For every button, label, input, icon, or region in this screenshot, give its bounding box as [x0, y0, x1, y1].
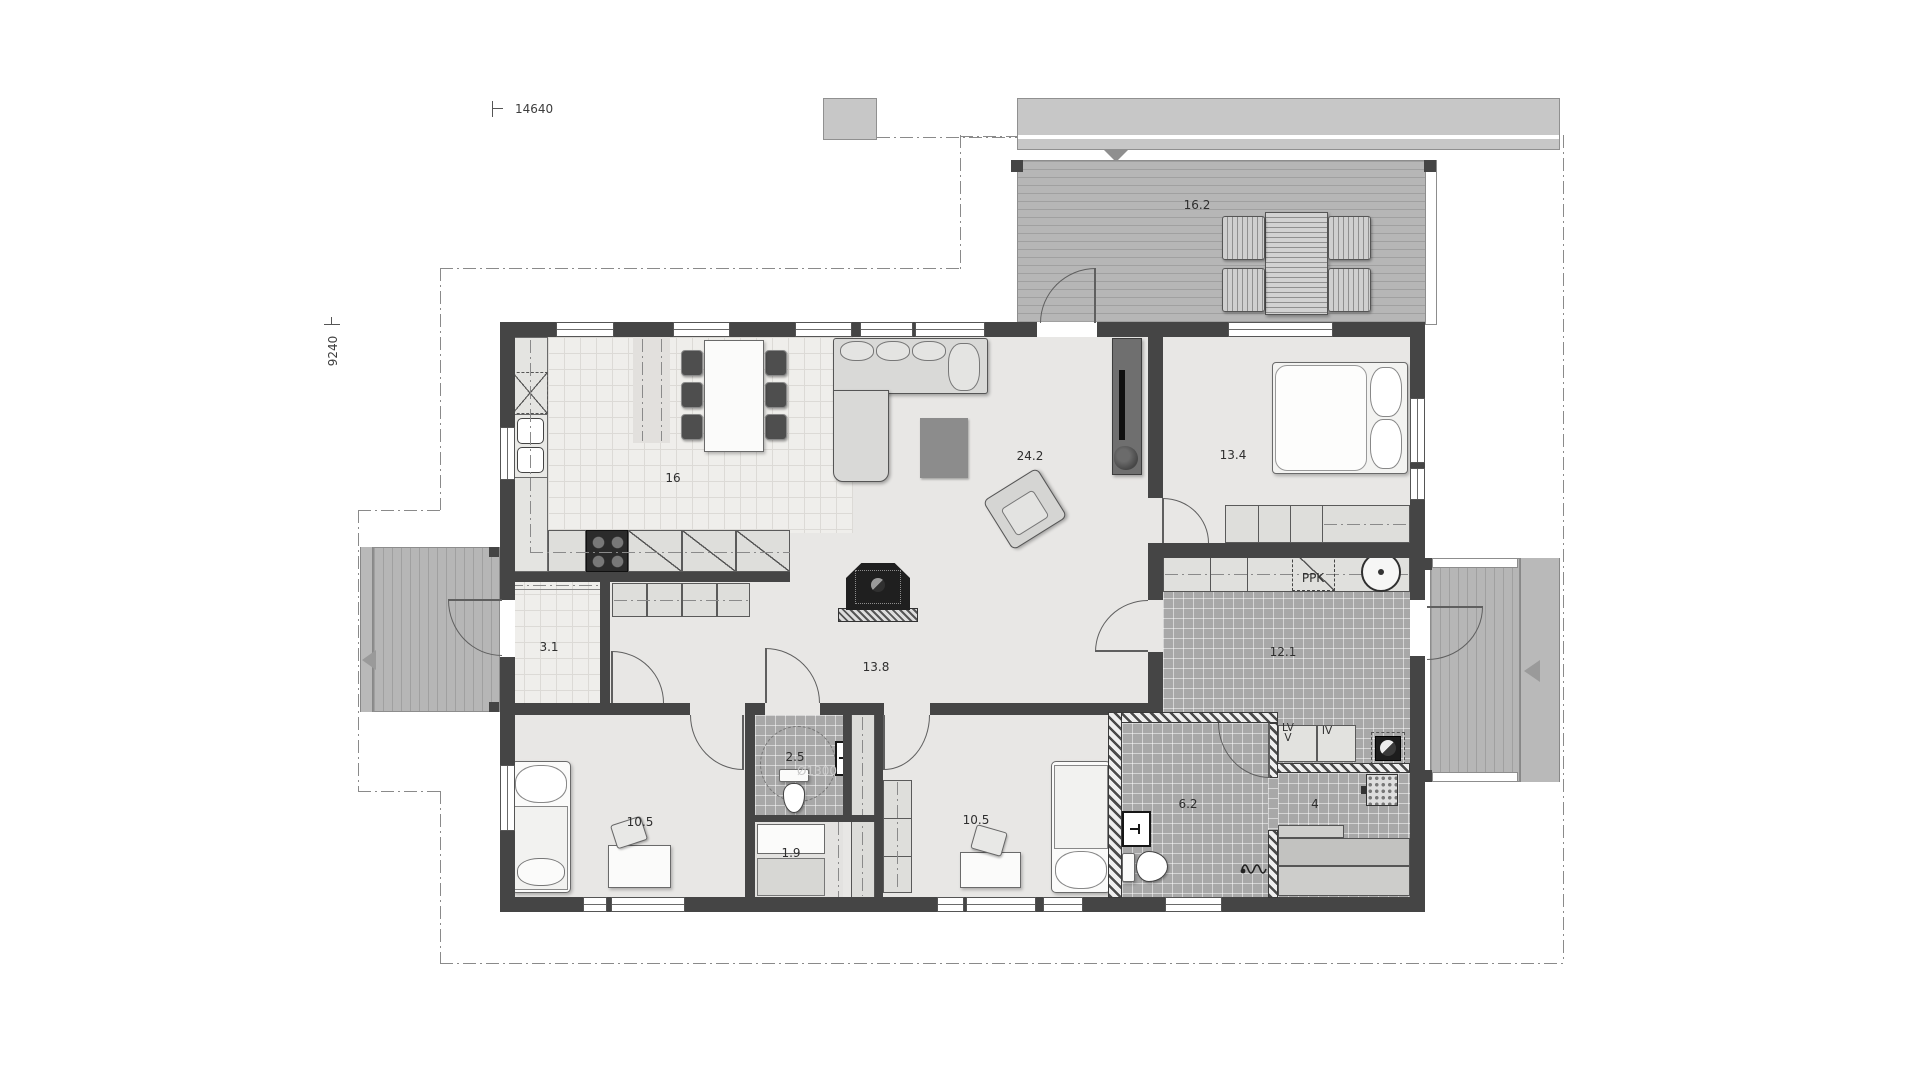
center-line: [614, 600, 748, 601]
room-label-utility-room: 12.1: [1270, 645, 1297, 659]
door-leaf: [765, 648, 767, 703]
wardrobe-divider: [1322, 505, 1323, 543]
door-opening: [1037, 322, 1097, 337]
dimension-tick: [331, 317, 332, 325]
wardrobe-divider: [1258, 505, 1259, 543]
washing-machine-label: PPK: [1302, 571, 1324, 585]
sauna-heater-handle: [1361, 786, 1366, 794]
roof-slope-arrow-icon: [1524, 660, 1540, 682]
room-label-closet: 1.9: [781, 846, 800, 860]
boundary-line: [440, 963, 1564, 964]
boundary-line: [960, 135, 961, 269]
boundary-line: [440, 268, 441, 510]
dimension-tick: [492, 101, 493, 117]
center-line: [530, 340, 531, 552]
room-label-wc: 2.5: [785, 750, 804, 764]
right-porch-deck: [1430, 558, 1520, 782]
pillow: [1370, 367, 1402, 417]
dining-chair: [765, 414, 787, 440]
door-opening: [1148, 600, 1163, 652]
service-shaft: [851, 715, 875, 898]
window: [915, 322, 985, 337]
porch-roof-edge: [360, 547, 373, 712]
kitchen-cabinet: [736, 530, 790, 572]
outdoor-chair: [1328, 216, 1371, 260]
pillow: [1370, 419, 1402, 469]
ventilation-label: IV: [1322, 726, 1332, 736]
porch-post: [489, 702, 499, 712]
window: [966, 897, 1036, 912]
porch-edge-board: [1432, 772, 1518, 782]
center-line: [1324, 524, 1408, 525]
wet-room-wall: [1108, 712, 1122, 898]
door-leaf: [883, 715, 885, 770]
door-leaf: [1095, 650, 1148, 652]
bed-blanket: [1054, 765, 1108, 849]
boundary-line: [358, 510, 359, 791]
window: [1228, 322, 1333, 337]
water-heater-dial: [1378, 569, 1384, 575]
sauna-heater-symbol: [1366, 774, 1398, 806]
wet-room-wall: [1268, 830, 1278, 898]
dining-chair: [681, 382, 703, 408]
desk: [960, 852, 1021, 888]
room-label-entry: 3.1: [539, 640, 558, 654]
window: [860, 322, 913, 337]
sofa-armrest: [948, 343, 980, 391]
dining-table: [704, 340, 764, 452]
outdoor-chair: [1328, 268, 1371, 312]
center-line: [510, 585, 598, 586]
window: [583, 897, 607, 912]
turning-circle-label: Ø1300: [797, 764, 837, 778]
tv-symbol: [1119, 370, 1125, 440]
boundary-line: [1563, 135, 1564, 963]
kitchen-cabinet: [682, 530, 736, 572]
interior-wall: [745, 703, 765, 715]
room-label-bathroom: 6.2: [1178, 797, 1197, 811]
room-label-terrace: 16.2: [1184, 198, 1211, 212]
room-label-bedroom-left: 10.5: [627, 815, 654, 829]
room-label-bedroom-right: 10.5: [963, 813, 990, 827]
door-leaf: [611, 651, 613, 703]
outdoor-chair: [1222, 216, 1265, 260]
toilet-tank: [1122, 853, 1135, 882]
desk: [608, 845, 671, 888]
window: [1043, 897, 1083, 912]
door-leaf: [742, 715, 744, 770]
outdoor-chair: [1222, 268, 1265, 312]
roof-edge: [823, 98, 877, 140]
terrace-post: [1011, 160, 1023, 172]
dimension-left: 9240: [326, 336, 340, 367]
sauna-bench: [1278, 866, 1410, 896]
wardrobe-divider: [1290, 505, 1291, 543]
window: [1165, 897, 1222, 912]
interior-wall: [843, 715, 851, 815]
room-label-sauna: 4: [1311, 797, 1319, 811]
interior-wall: [820, 703, 884, 715]
door-opening: [1410, 600, 1425, 656]
door-leaf: [1268, 723, 1270, 778]
window: [795, 322, 852, 337]
interior-wall: [1148, 652, 1163, 703]
window: [1410, 468, 1425, 500]
sofa-cushion: [876, 341, 910, 361]
kitchen-cabinet: [548, 530, 586, 572]
window: [500, 427, 515, 480]
interior-wall: [875, 715, 883, 898]
sofa-cushion: [912, 341, 946, 361]
interior-wall: [500, 703, 690, 715]
boundary-line: [358, 791, 441, 792]
interior-wall: [755, 815, 875, 822]
door-leaf: [1094, 268, 1096, 323]
dining-chair: [765, 382, 787, 408]
interior-wall: [1148, 543, 1163, 600]
dining-chair: [681, 414, 703, 440]
door-leaf: [448, 599, 502, 601]
center-line: [897, 782, 898, 891]
dining-chair: [765, 350, 787, 376]
sauna-bench: [1278, 838, 1410, 866]
sofa-cushion: [840, 341, 874, 361]
outdoor-table: [1265, 212, 1328, 315]
wet-room-wall: [1277, 763, 1410, 773]
center-line: [642, 339, 643, 441]
fireplace-door: [871, 578, 885, 592]
center-line: [661, 339, 662, 441]
dimension-tick: [492, 108, 503, 109]
ceiling-beam: [633, 337, 670, 443]
rug: [920, 418, 968, 478]
faucet-icon: [1138, 824, 1140, 834]
pillow: [515, 765, 567, 803]
window: [556, 322, 614, 337]
water-heater-label: LVV: [1282, 723, 1294, 743]
roof-slope-arrow-icon: [362, 650, 376, 670]
stove-symbol: [586, 530, 628, 572]
door-opening: [500, 600, 515, 657]
room-label-master-bedroom: 13.4: [1220, 448, 1247, 462]
roof-edge: [1017, 98, 1560, 150]
pillow: [1055, 851, 1107, 889]
terrace-post: [1424, 160, 1436, 172]
boundary-line: [440, 268, 960, 269]
boundary-line: [440, 791, 441, 963]
interior-wall: [1148, 337, 1163, 498]
room-label-living-room: 24.2: [1017, 449, 1044, 463]
sofa-chaise: [833, 390, 889, 482]
fireplace-hearth: [838, 608, 918, 622]
terrace-edge-board: [1425, 160, 1437, 325]
interior-wall: [1163, 543, 1425, 558]
interior-wall: [600, 582, 610, 703]
bathroom-floor: [1268, 778, 1278, 830]
sauna-bench-step: [1278, 825, 1344, 838]
wet-room-wall: [1108, 712, 1278, 723]
floor-plan-canvas: 14640 9240: [0, 0, 1920, 1080]
center-line: [862, 717, 863, 896]
window: [1410, 398, 1425, 463]
porch-post: [489, 547, 499, 557]
room-label-hallway: 13.8: [863, 660, 890, 674]
boundary-line: [358, 510, 441, 511]
blanket-roll: [517, 858, 565, 886]
interior-wall: [500, 572, 790, 582]
center-line: [838, 822, 839, 897]
door-leaf: [1427, 606, 1483, 608]
dimension-tick: [324, 324, 340, 325]
window: [937, 897, 964, 912]
boundary-line: [877, 137, 1017, 138]
window: [611, 897, 685, 912]
drain-cover: [1380, 740, 1396, 756]
dimension-top: 14640: [515, 102, 553, 116]
door-leaf: [1162, 498, 1164, 543]
room-label-kitchen: 16: [665, 471, 680, 485]
dining-chair: [681, 350, 703, 376]
bed-mattress: [1275, 365, 1367, 471]
interior-wall: [745, 715, 755, 898]
porch-edge-board: [1432, 558, 1518, 568]
plant-symbol: [1114, 446, 1138, 470]
window: [673, 322, 730, 337]
water-heater-label-line2: V: [1284, 732, 1291, 744]
window: [500, 765, 515, 831]
kitchen-cabinet: [628, 530, 682, 572]
center-line: [530, 552, 790, 553]
closet-bench: [757, 858, 825, 896]
door-opening: [1148, 498, 1163, 543]
